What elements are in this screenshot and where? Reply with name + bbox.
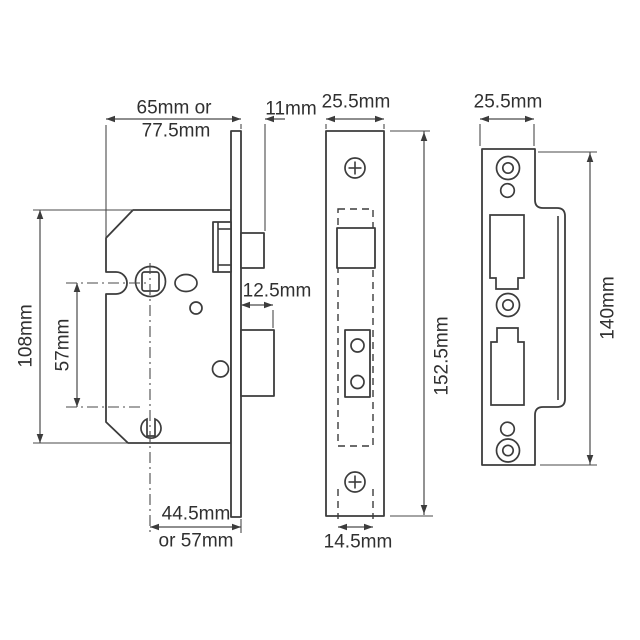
dim-label-strike-width: 25.5mm	[474, 92, 543, 113]
dim-label-strike-height: 140mm	[598, 276, 619, 339]
dim-label-deadbolt-throw: 12.5mm	[243, 281, 312, 302]
dim-label-latch-projection: 11mm	[265, 99, 316, 120]
strike-plate-outline	[482, 149, 565, 465]
dim-label-case-width-2: 77.5mm	[142, 121, 211, 142]
fixing-hole-small	[501, 184, 515, 198]
dim-label-faceplate-height: 152.5mm	[432, 316, 453, 395]
arrowhead	[326, 116, 335, 123]
faceplate-edge	[231, 131, 241, 517]
countersunk-screw-hole	[497, 439, 520, 462]
countersunk-screw-hole	[497, 157, 520, 180]
arrowhead	[37, 434, 44, 443]
arrowhead	[421, 132, 428, 141]
arrowhead	[74, 283, 81, 292]
arrowhead	[375, 116, 384, 123]
arrowhead	[480, 116, 489, 123]
latch-bolt-projection	[241, 233, 264, 268]
dim-label-faceplate-width: 25.5mm	[322, 92, 391, 113]
arrowhead	[241, 302, 250, 309]
latch-cutout	[490, 215, 524, 289]
faceplate-front-view: 25.5mm 152.5mm 14.5mm	[322, 92, 453, 553]
faceplate-front	[326, 131, 384, 516]
arrowhead	[232, 116, 241, 123]
dim-label-case-width-front: 14.5mm	[324, 532, 393, 553]
arrowhead	[364, 524, 373, 531]
dim-label-backset-1: 44.5mm	[162, 504, 231, 525]
oval-hole	[175, 275, 197, 292]
arrowhead	[37, 210, 44, 219]
arrowhead	[232, 524, 241, 531]
fixing-hole-small	[501, 422, 515, 436]
deadbolt-pin-hole	[351, 376, 364, 389]
fixing-hole-small	[190, 302, 202, 314]
arrowhead	[74, 398, 81, 407]
dim-label-backset-2: or 57mm	[159, 531, 234, 552]
latch-bolt-face	[337, 228, 375, 268]
arrowhead	[587, 153, 594, 162]
deadbolt-projection	[241, 330, 274, 396]
strike-plate-view: 25.5mm 140mm	[474, 92, 619, 466]
arrowhead	[338, 524, 347, 531]
arrowhead	[150, 524, 159, 531]
mortice-lock-dimension-drawing: 65mm or 77.5mm 11mm 12.5mm 108mm 57mm 44…	[0, 0, 640, 640]
arrowhead	[106, 116, 115, 123]
arrowhead	[525, 116, 534, 123]
arrowhead	[421, 505, 428, 514]
dim-label-spindle-to-keyhole: 57mm	[53, 319, 74, 372]
arrowhead	[587, 455, 594, 464]
technical-drawing-canvas: 65mm or 77.5mm 11mm 12.5mm 108mm 57mm 44…	[0, 0, 640, 640]
screw-icon	[345, 472, 365, 492]
lock-body-side-view: 65mm or 77.5mm 11mm 12.5mm 108mm 57mm 44…	[16, 98, 317, 552]
dim-label-case-height: 108mm	[16, 304, 37, 367]
fixing-hole	[213, 361, 229, 377]
countersunk-screw-hole	[497, 294, 520, 317]
dim-label-case-width-1: 65mm or	[137, 98, 213, 119]
arrowhead	[264, 302, 273, 309]
screw-icon	[345, 158, 365, 178]
deadbolt-pin-hole	[351, 339, 364, 352]
